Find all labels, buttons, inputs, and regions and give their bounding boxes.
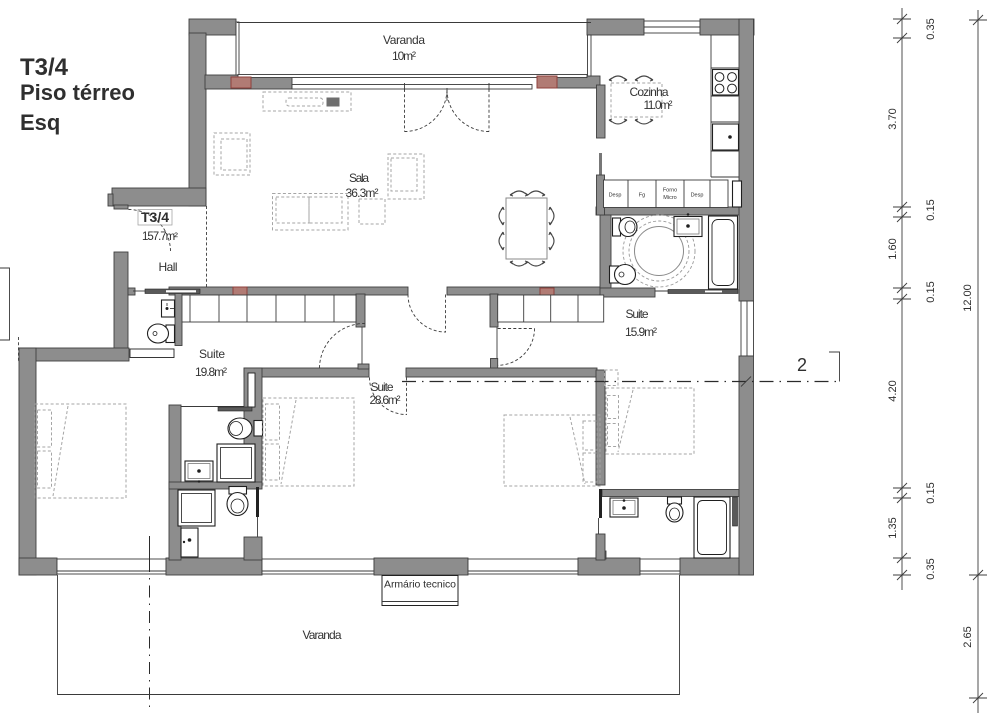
svg-text:0.15: 0.15: [925, 482, 937, 503]
svg-text:0.35: 0.35: [925, 18, 937, 39]
svg-text:36.3m²: 36.3m²: [346, 186, 379, 200]
svg-text:12.00: 12.00: [962, 284, 974, 312]
svg-text:Varanda: Varanda: [383, 33, 425, 47]
svg-text:0.15: 0.15: [925, 199, 937, 220]
svg-text:11.0m²: 11.0m²: [644, 98, 673, 112]
svg-text:2.65: 2.65: [962, 626, 974, 647]
svg-text:10m²: 10m²: [392, 49, 416, 63]
svg-text:1.60: 1.60: [887, 238, 899, 259]
svg-text:T3/4: T3/4: [141, 209, 169, 225]
svg-text:Hall: Hall: [159, 260, 178, 274]
svg-text:28.6m²: 28.6m²: [370, 393, 401, 407]
svg-text:Suite: Suite: [371, 380, 394, 394]
svg-text:157.7m²: 157.7m²: [142, 231, 178, 243]
svg-text:0.35: 0.35: [925, 558, 937, 579]
svg-text:Desp: Desp: [609, 193, 622, 199]
svg-text:Forno: Forno: [663, 188, 677, 194]
svg-text:Fg: Fg: [639, 193, 645, 199]
svg-text:Esq: Esq: [20, 110, 60, 135]
svg-text:Suite: Suite: [626, 307, 649, 321]
svg-text:4.20: 4.20: [887, 380, 899, 401]
svg-text:Varanda: Varanda: [303, 628, 342, 642]
svg-text:Sala: Sala: [349, 171, 369, 185]
svg-text:Piso térreo: Piso térreo: [20, 80, 135, 105]
svg-text:Desp: Desp: [691, 193, 704, 199]
svg-text:Suite: Suite: [199, 347, 225, 361]
svg-text:2: 2: [797, 355, 807, 375]
svg-text:1.35: 1.35: [887, 517, 899, 538]
svg-text:0.15: 0.15: [925, 281, 937, 302]
svg-text:Cozinha: Cozinha: [630, 85, 669, 99]
svg-text:3.70: 3.70: [887, 108, 899, 129]
svg-text:19.8m²: 19.8m²: [195, 365, 227, 379]
svg-text:T3/4: T3/4: [20, 54, 69, 81]
svg-text:Armário tecnico: Armário tecnico: [384, 579, 456, 591]
svg-text:15.9m²: 15.9m²: [625, 325, 657, 339]
svg-text:Micro: Micro: [663, 195, 676, 201]
